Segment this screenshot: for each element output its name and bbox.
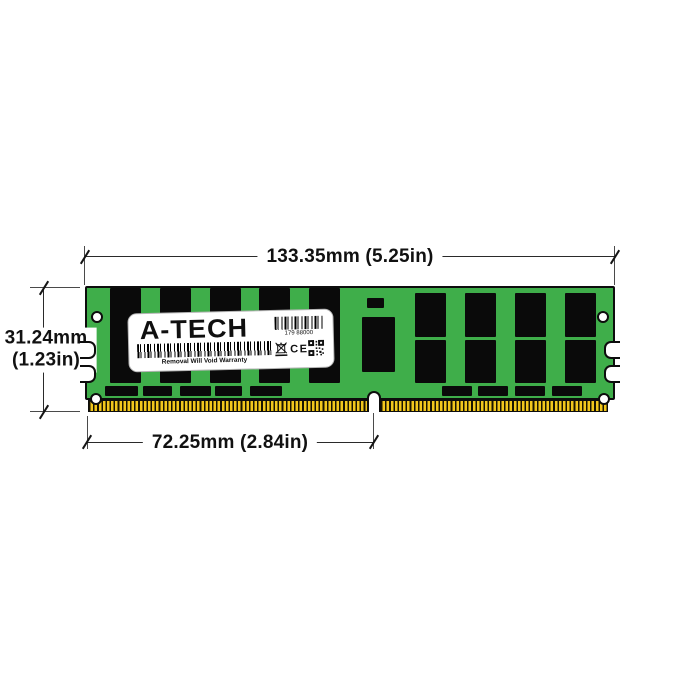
gold-pins-right bbox=[380, 400, 608, 412]
memory-chip bbox=[415, 340, 446, 383]
memory-chip bbox=[465, 340, 496, 383]
memory-chip bbox=[415, 293, 446, 337]
latch-notch-left-lower bbox=[80, 365, 96, 383]
weee-crossed-bin-icon bbox=[274, 341, 289, 362]
memory-chip bbox=[465, 293, 496, 337]
extension-line-left-top bbox=[30, 287, 80, 288]
serial-barcode bbox=[274, 316, 322, 330]
memory-chip bbox=[442, 386, 472, 396]
memory-chip bbox=[105, 386, 138, 396]
height-dimension-mm: 31.24mm bbox=[5, 328, 88, 350]
product-diagram-canvas: 133.35mm (5.25in) 31.24mm (1.23in) 72.25… bbox=[0, 0, 700, 700]
memory-chip bbox=[478, 386, 508, 396]
mount-hole-bottom-left bbox=[90, 393, 102, 405]
mount-hole-top-left bbox=[91, 311, 103, 323]
latch-notch-right-lower bbox=[604, 365, 620, 383]
memory-chip bbox=[143, 386, 172, 396]
key-notch bbox=[367, 391, 381, 412]
ce-mark: CE bbox=[290, 343, 309, 355]
memory-chip bbox=[515, 386, 545, 396]
memory-chip bbox=[367, 298, 384, 308]
memory-chip bbox=[215, 386, 242, 396]
gold-pins-left bbox=[88, 400, 368, 412]
memory-chip bbox=[515, 340, 546, 383]
qr-code-icon bbox=[308, 340, 325, 361]
memory-chip bbox=[565, 293, 596, 337]
memory-chip bbox=[250, 386, 282, 396]
extension-line-left-bottom bbox=[30, 411, 80, 412]
latch-notch-left-upper bbox=[80, 341, 96, 359]
mount-hole-top-right bbox=[597, 311, 609, 323]
memory-chip bbox=[565, 340, 596, 383]
width-dimension-label: 133.35mm (5.25in) bbox=[257, 246, 442, 268]
extension-line-top-right bbox=[614, 246, 615, 285]
memory-chip bbox=[552, 386, 582, 396]
product-label: A-TECH 179 88000 Removal Will Void Warra… bbox=[127, 308, 334, 372]
mount-hole-bottom-right bbox=[598, 393, 610, 405]
height-dimension-in: (1.23in) bbox=[5, 350, 88, 372]
memory-chip bbox=[180, 386, 211, 396]
memory-chip bbox=[362, 317, 395, 372]
memory-chip bbox=[515, 293, 546, 337]
notch-dimension-label: 72.25mm (2.84in) bbox=[143, 432, 317, 454]
extension-line-top-left bbox=[84, 246, 85, 285]
serial-number: 179 88000 bbox=[275, 330, 323, 337]
extension-line-bottom-left bbox=[87, 416, 88, 449]
latch-notch-right-upper bbox=[604, 341, 620, 359]
